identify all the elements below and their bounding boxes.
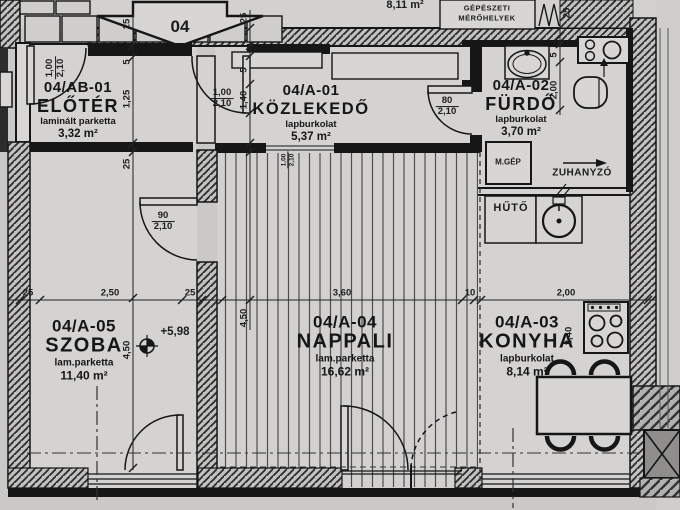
dim-label: 10 xyxy=(465,288,476,299)
door-dim-room: 90 2,10 xyxy=(152,211,175,233)
room-area: 11,40 m² xyxy=(45,369,123,383)
mgep-label: M.GÉP xyxy=(495,158,521,167)
dim-label: 2,00 xyxy=(557,288,576,299)
dim-label: 5 xyxy=(122,59,133,64)
door-dim-hall: 1,00 2,10 xyxy=(211,88,234,110)
dim-label: 2,10 xyxy=(289,152,296,169)
dim-label: 25 xyxy=(239,13,250,24)
room-id: 04/A-04 xyxy=(297,314,394,331)
dim-label: 25 xyxy=(122,19,133,30)
room-area: 3,70 m² xyxy=(485,125,557,139)
room-area: 8,14 m² xyxy=(479,365,575,379)
room-floor: lam.parketta xyxy=(45,358,123,369)
dim-label: 1,25 xyxy=(122,90,133,109)
dim-label: 2,50 xyxy=(101,288,120,299)
dim-label: 2,10 xyxy=(211,100,234,110)
room-area: 16,62 m² xyxy=(297,365,394,379)
zuhanyzo-label: ZUHANYZÓ xyxy=(552,168,612,179)
level-mark-label: +5,98 xyxy=(160,326,189,338)
kitchen-sink-icon xyxy=(536,196,582,243)
room-id: 04/A-03 xyxy=(479,314,575,331)
washbasin-icon xyxy=(505,46,549,79)
dim-label: 2,10 xyxy=(152,223,175,233)
room-id: 04/A-01 xyxy=(252,82,369,99)
room-nappali: 04/A-04 NAPPALI lam.parketta 16,62 m² xyxy=(297,314,394,379)
room-id: 04/A-02 xyxy=(485,77,557,94)
dim-label: 2,40 xyxy=(564,327,575,346)
dim-label: 5 xyxy=(239,67,250,72)
room-konyha: 04/A-03 KONYHA lapburkolat 8,14 m² xyxy=(479,314,575,379)
floor-plan-page: 04 GÉPÉSZETI MÉRŐHELYEK 8,11 m² 04/AB-01… xyxy=(0,0,680,510)
door-dim-bath: 80 2,10 xyxy=(436,96,459,118)
floor-plan-drawing xyxy=(0,0,680,510)
room-id: 04/A-05 xyxy=(45,318,123,335)
room-floor: lapburkolat xyxy=(485,114,557,125)
door-dim-living: 1,00 2,10 xyxy=(280,152,295,169)
dim-label: 2,00 xyxy=(549,81,560,100)
room-name: FÜRDŐ xyxy=(485,94,557,114)
room-floor: lapburkolat xyxy=(479,354,575,365)
dim-label: 25 xyxy=(185,288,196,299)
dim-label: 2,10 xyxy=(436,108,459,118)
room-name: KÖZLEKEDŐ xyxy=(252,99,369,119)
dim-label: 4,50 xyxy=(239,309,250,328)
dim-label: 5 xyxy=(549,52,560,57)
room-eloter: 04/AB-01 ELŐTÉR laminált parketta 3,32 m… xyxy=(37,79,119,141)
room-furdo: 04/A-02 FÜRDŐ lapburkolat 3,70 m² xyxy=(485,77,557,139)
room-area: 3,32 m² xyxy=(37,127,119,141)
dim-label: 3,60 xyxy=(333,288,352,299)
room-floor: lam.parketta xyxy=(297,354,394,365)
mech-label-line1: GÉPÉSZETI xyxy=(464,4,511,13)
mech-label-line2: MÉRŐHELYEK xyxy=(458,14,515,23)
room-area: 5,37 m² xyxy=(252,130,369,144)
room-floor: lapburkolat xyxy=(252,119,369,130)
room-name: SZOBA xyxy=(45,335,123,358)
dim-label: 1,00 xyxy=(280,152,288,169)
room-szoba: 04/A-05 SZOBA lam.parketta 11,40 m² xyxy=(45,318,123,383)
room-name: NAPPALI xyxy=(297,331,394,354)
room-name: ELŐTÉR xyxy=(37,96,119,116)
room-kozlekedo: 04/A-01 KÖZLEKEDŐ lapburkolat 5,37 m² xyxy=(252,82,369,144)
dim-label: 25 xyxy=(562,8,573,19)
dim-label: 2,10 xyxy=(57,57,67,80)
huto-label: HŰTŐ xyxy=(493,202,528,214)
dim-label: 4,50 xyxy=(122,341,133,360)
stove-icon xyxy=(584,302,628,353)
unit-number-badge: 04 xyxy=(171,17,190,37)
door-dim-entry: 1,00 2,10 xyxy=(45,57,67,80)
dim-label: 1,40 xyxy=(239,91,250,110)
dim-label: 25 xyxy=(122,159,133,170)
dim-label: 25 xyxy=(23,288,34,299)
room-floor: laminált parketta xyxy=(37,116,119,127)
adjacent-room-area: 8,11 m² xyxy=(386,0,423,11)
room-id: 04/AB-01 xyxy=(37,79,119,96)
room-name: KONYHA xyxy=(479,331,575,354)
